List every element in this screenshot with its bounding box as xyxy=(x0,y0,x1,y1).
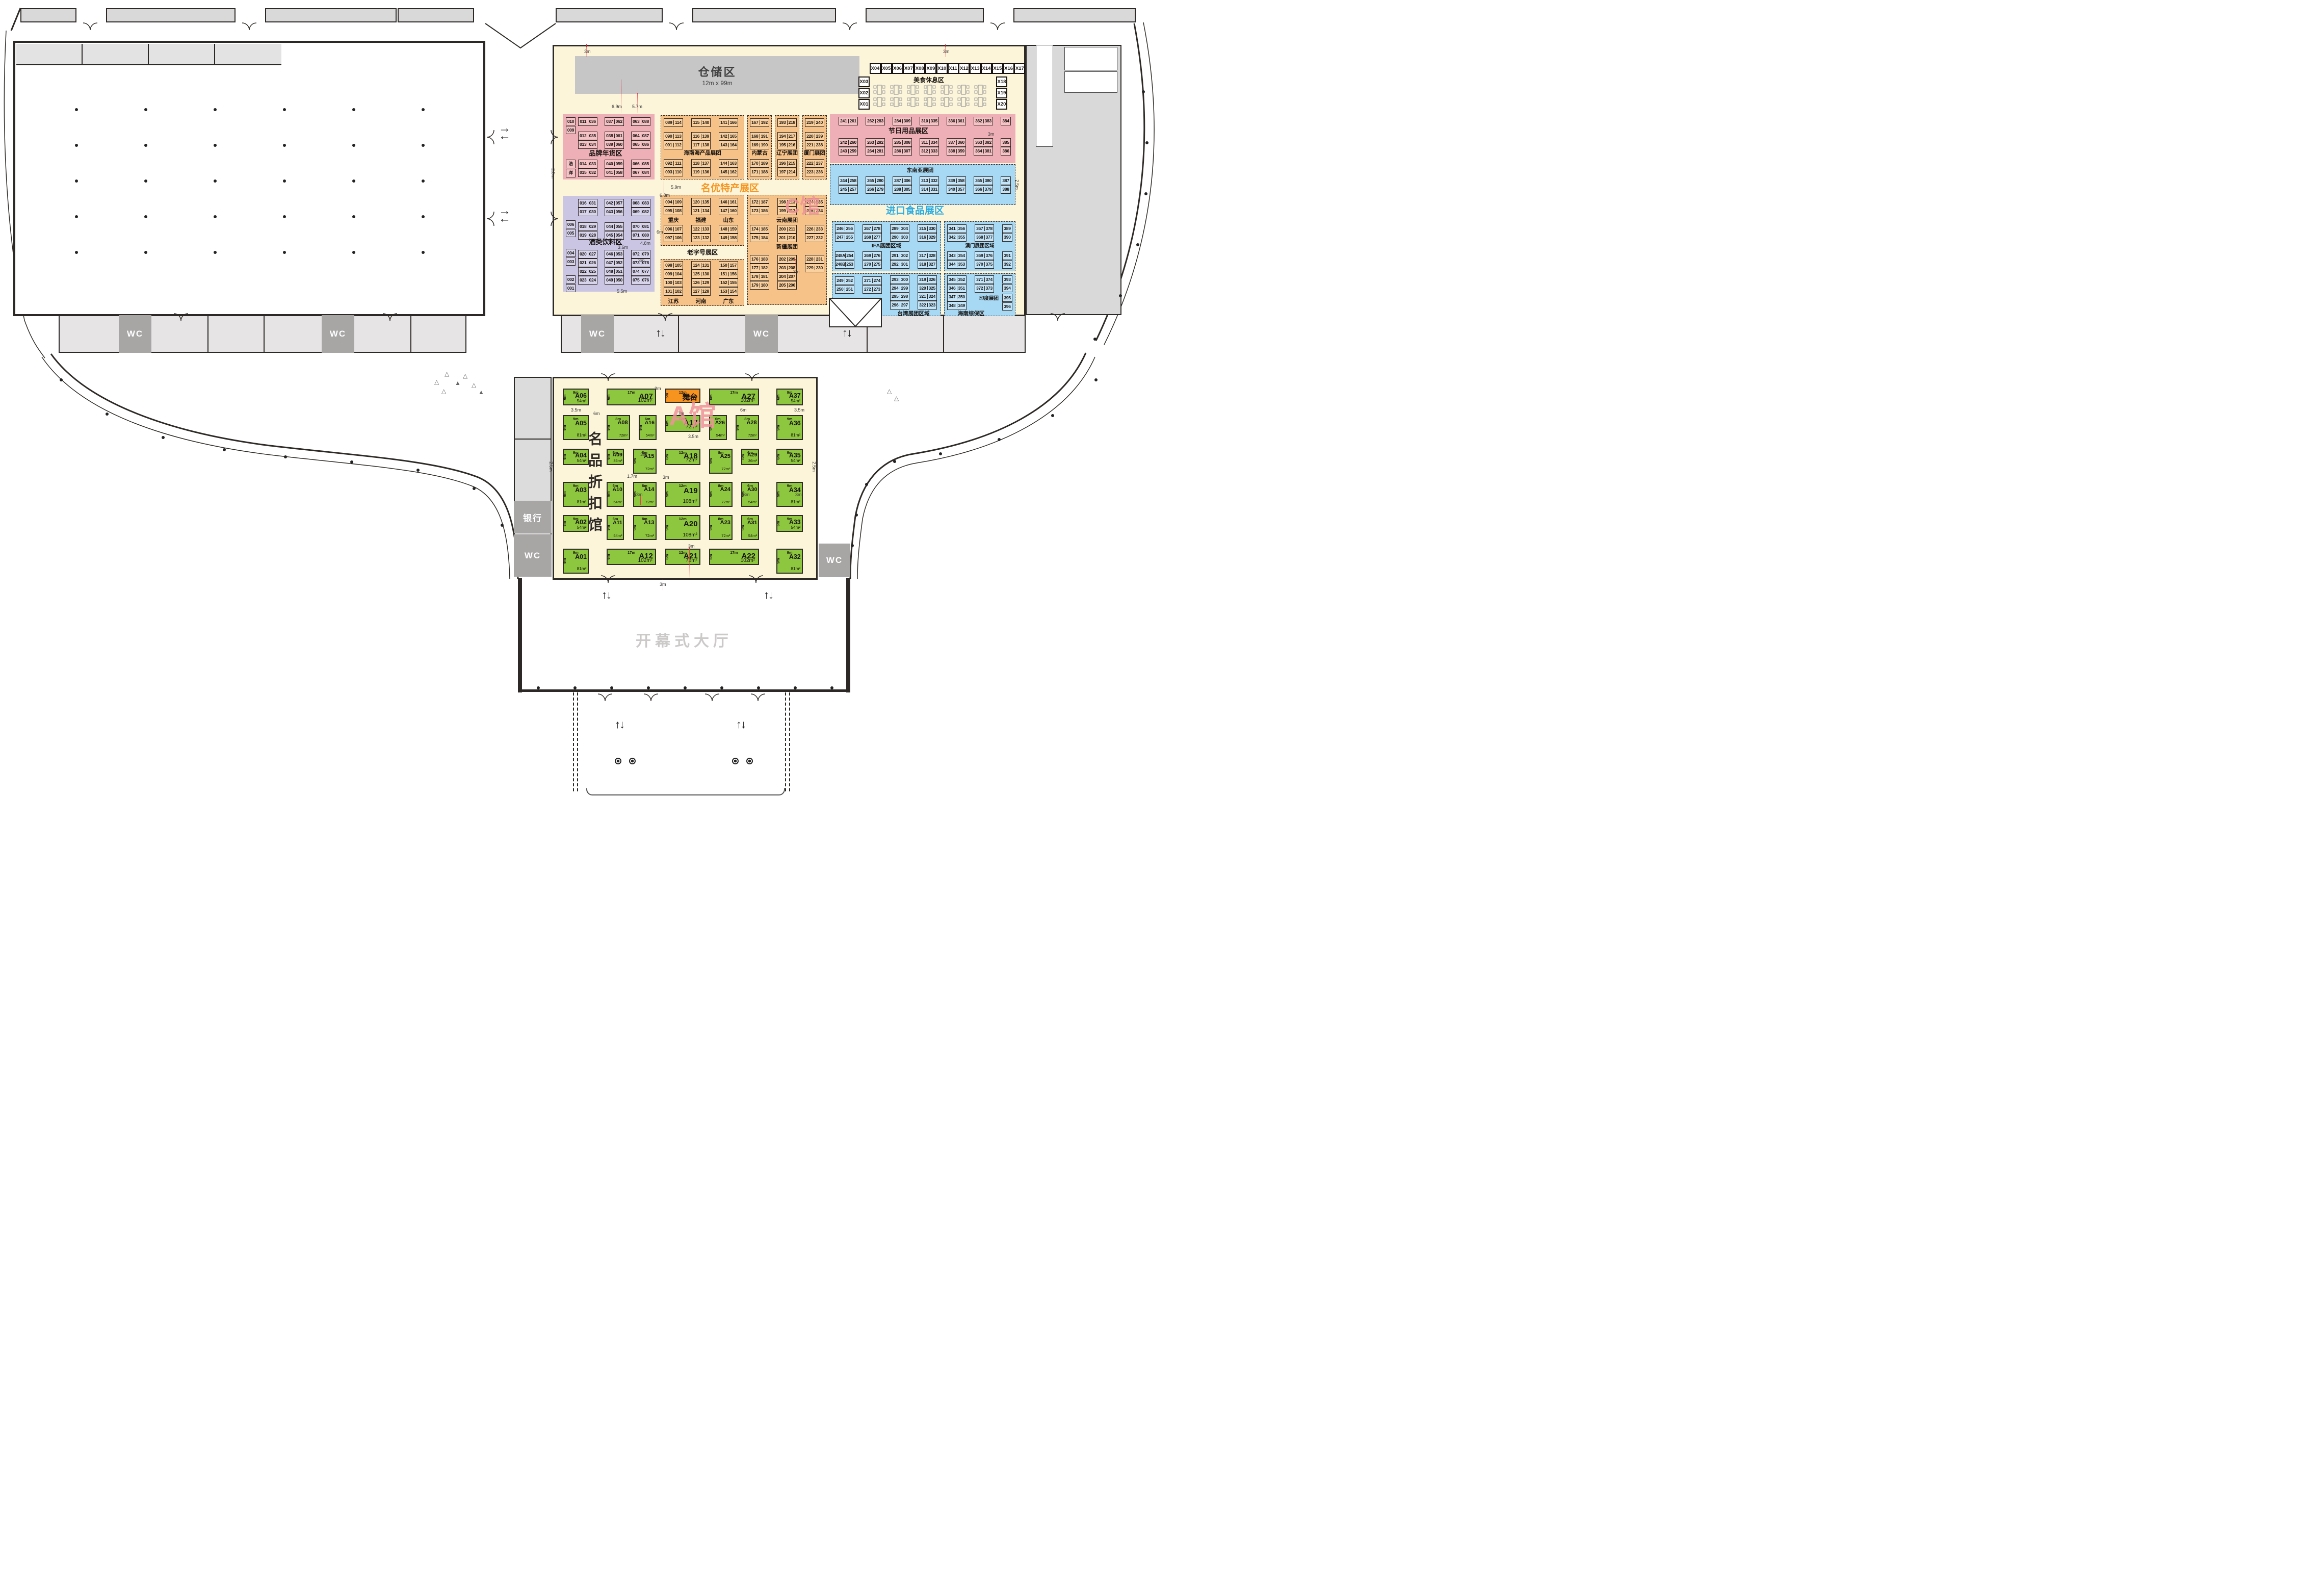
bank-room[interactable]: 银行 xyxy=(514,501,552,533)
booth-cell[interactable]: 248A254 xyxy=(835,251,854,260)
booth-cell[interactable]: 267278 xyxy=(863,224,882,233)
booth-cell[interactable]: 271274 xyxy=(863,276,882,285)
booth-cell[interactable]: 005 xyxy=(566,229,576,237)
booth-cell[interactable]: 313332 xyxy=(920,176,939,185)
booth-cell[interactable]: 153154 xyxy=(719,287,738,296)
booth-cell[interactable]: 265280 xyxy=(866,176,885,185)
booth-cell[interactable]: 221238 xyxy=(805,141,824,149)
x-booth-cell[interactable]: X12 xyxy=(958,63,970,74)
booth-cell[interactable]: 011036 xyxy=(578,117,597,126)
booth-cell[interactable]: 272273 xyxy=(863,285,882,294)
x-booth-cell[interactable]: X05 xyxy=(881,63,892,74)
booth-cell[interactable]: 321324 xyxy=(918,292,937,301)
booth-cell[interactable]: 003 xyxy=(566,258,576,266)
booth-cell[interactable]: 040059 xyxy=(605,160,624,168)
booth-cell[interactable]: 286307 xyxy=(893,147,912,156)
booth-cell[interactable]: 337360 xyxy=(947,138,966,147)
booth-cell[interactable]: 369376 xyxy=(975,251,994,260)
booth-cell[interactable]: 320325 xyxy=(918,284,937,293)
booth-cell[interactable]: 144163 xyxy=(719,159,738,168)
booth-width-dim: 17m xyxy=(730,390,738,395)
column-dot xyxy=(416,469,420,472)
booth-cell[interactable]: 126129 xyxy=(691,278,711,287)
booth-cell[interactable]: 270275 xyxy=(863,260,882,269)
booth-cell[interactable]: 097106 xyxy=(664,234,683,242)
booth-cell[interactable]: 170189 xyxy=(750,159,769,168)
booth-cell[interactable]: 151156 xyxy=(719,270,738,278)
column-dot xyxy=(422,251,425,254)
booth-cell[interactable]: 152155 xyxy=(719,278,738,287)
booth-cell[interactable]: 179180 xyxy=(750,281,769,290)
booth-cell[interactable]: 395 xyxy=(1002,294,1012,302)
booth-cell[interactable]: 287306 xyxy=(893,176,912,185)
booth-cell[interactable]: 338359 xyxy=(947,147,966,156)
booth-cell[interactable]: 047052 xyxy=(605,259,624,267)
booth-cell[interactable]: 363382 xyxy=(974,138,993,147)
booth-cell[interactable]: 014033 xyxy=(578,160,597,168)
booth-height-dim: 6m xyxy=(665,554,669,560)
a-booth[interactable]: 17m6mA22102m² xyxy=(709,549,759,565)
double-door-icon xyxy=(597,693,613,705)
booth-cell[interactable]: 347350 xyxy=(947,293,967,301)
top-wall-segment xyxy=(20,8,76,22)
x-booth-cell[interactable]: X19 xyxy=(996,88,1007,98)
a-booth[interactable]: 8m9mA2372m² xyxy=(709,515,733,540)
booth-cell[interactable]: 226233 xyxy=(805,225,824,234)
a-booth[interactable]: 6m9mA1054m² xyxy=(607,482,624,507)
booth-cell[interactable]: 021026 xyxy=(578,259,597,267)
x-booth-cell[interactable]: X18 xyxy=(996,76,1007,87)
booth-cell[interactable]: 141166 xyxy=(719,118,738,127)
column-dot xyxy=(75,144,78,147)
booth-cell[interactable]: 038061 xyxy=(605,132,624,140)
booth-cell[interactable]: 322323 xyxy=(918,301,937,310)
a-booth[interactable]: 9m9mA3281m² xyxy=(776,549,803,574)
a-booth[interactable]: 6m6mA0936m² xyxy=(607,449,624,466)
booth-cell[interactable]: 244258 xyxy=(839,176,858,185)
booth-cell[interactable]: 177182 xyxy=(750,264,769,272)
booth-cell[interactable]: 116139 xyxy=(691,132,711,141)
booth-cell[interactable]: 391 xyxy=(1002,251,1012,260)
booth-cell[interactable]: 366379 xyxy=(974,185,993,194)
booth-cell[interactable]: 266279 xyxy=(866,185,885,194)
top-wall-segment xyxy=(265,8,397,22)
booth-cell[interactable]: 168191 xyxy=(750,132,769,141)
a-booth[interactable]: 9m6mA3754m² xyxy=(776,389,803,405)
booth-cell[interactable]: 118137 xyxy=(691,159,711,168)
booth-cell[interactable]: 295298 xyxy=(890,292,909,301)
column-dot xyxy=(893,460,896,463)
booth-cell[interactable]: 228231 xyxy=(805,255,824,264)
a-booth[interactable]: 9m6mA0654m² xyxy=(563,389,589,405)
booth-cell[interactable]: 312333 xyxy=(920,147,939,156)
booth-cell[interactable]: 119136 xyxy=(691,168,711,176)
booth-cell[interactable]: 390 xyxy=(1002,233,1012,242)
booth-cell[interactable]: 245257 xyxy=(839,185,858,194)
booth-cell[interactable]: 016031 xyxy=(578,199,597,208)
a-booth[interactable]: 12m6mA1872m² xyxy=(665,449,700,466)
x-booth-cell[interactable]: X08 xyxy=(914,63,925,74)
booth-cell[interactable]: 145162 xyxy=(719,168,738,176)
booth-cell[interactable]: 142165 xyxy=(719,132,738,141)
booth-cell[interactable]: 342355 xyxy=(947,233,967,242)
a-booth[interactable]: 17m6mA07102m² xyxy=(607,389,657,405)
booth-cell[interactable]: 311334 xyxy=(920,138,939,147)
booth-cell[interactable]: 074077 xyxy=(631,267,650,276)
booth-cell[interactable]: 147160 xyxy=(719,207,738,215)
booth-cell[interactable]: 089114 xyxy=(664,118,683,127)
booth-cell[interactable]: 194217 xyxy=(777,132,797,141)
booth-cell[interactable]: 318327 xyxy=(918,260,937,269)
wc-room[interactable]: WC xyxy=(581,315,614,353)
booth-cell[interactable]: 262283 xyxy=(866,117,885,125)
booth-cell[interactable]: 022025 xyxy=(578,267,597,276)
booth-cell[interactable]: 148159 xyxy=(719,225,738,234)
booth-cell[interactable]: 017030 xyxy=(578,208,597,216)
booth-cell[interactable]: 394 xyxy=(1002,284,1012,292)
booth-cell[interactable]: 268277 xyxy=(863,233,882,242)
booth-cell[interactable]: 012035 xyxy=(578,132,597,140)
entrance-column-icon xyxy=(732,758,739,764)
booth-cell[interactable]: 290303 xyxy=(890,233,909,242)
booth-cell[interactable]: 094109 xyxy=(664,198,683,207)
booth-cell[interactable]: 396 xyxy=(1002,302,1012,311)
a-booth[interactable]: 12m6mA2172m² xyxy=(665,549,700,565)
booth-cell[interactable]: 浩 xyxy=(566,160,576,168)
column-dot xyxy=(473,487,476,490)
x-booth-cell[interactable]: X09 xyxy=(925,63,936,74)
booth-cell[interactable]: 247255 xyxy=(835,233,854,242)
dimension-label: 3m xyxy=(636,492,643,497)
booth-cell[interactable]: 385 xyxy=(1001,138,1011,147)
booth-cell[interactable]: 121134 xyxy=(691,207,711,215)
booth-cell[interactable]: 285308 xyxy=(893,138,912,147)
booth-cell[interactable]: 065086 xyxy=(631,140,650,149)
booth-cell[interactable]: 229230 xyxy=(805,264,824,272)
booth-cell[interactable]: 222237 xyxy=(805,159,824,168)
booth-width-dim: 17m xyxy=(628,550,635,555)
a-booth[interactable]: 8m9mA2872m² xyxy=(736,415,759,440)
entrance-canopy xyxy=(586,788,785,795)
wc-room[interactable]: WC xyxy=(745,315,778,353)
booth-height-dim: 6m xyxy=(709,554,713,560)
booth-cell[interactable]: 125130 xyxy=(691,270,711,278)
booth-cell[interactable]: 250251 xyxy=(835,285,854,294)
x-booth-cell[interactable]: X02 xyxy=(858,88,870,98)
booth-cell[interactable]: 176183 xyxy=(750,255,769,264)
booth-cell[interactable]: 069082 xyxy=(631,208,650,216)
booth-cell[interactable]: 364381 xyxy=(974,147,993,156)
booth-cell[interactable]: 341356 xyxy=(947,224,967,233)
booth-cell[interactable]: 071080 xyxy=(631,231,650,240)
booth-cell[interactable]: 150157 xyxy=(719,261,738,270)
booth-width-dim: 17m xyxy=(730,550,738,555)
booth-cell[interactable]: 288305 xyxy=(893,185,912,194)
booth-cell[interactable]: 387 xyxy=(1001,176,1011,185)
booth-cell[interactable]: 242260 xyxy=(839,138,858,147)
booth-cell[interactable]: 122133 xyxy=(691,225,711,234)
booth-cell[interactable]: 100103 xyxy=(664,278,683,287)
booth-cell[interactable]: 143164 xyxy=(719,141,738,149)
x-booth-cell[interactable]: X07 xyxy=(903,63,914,74)
booth-cell[interactable]: 127128 xyxy=(691,287,711,296)
booth-cell[interactable]: 227232 xyxy=(805,234,824,242)
booth-area: 72m² xyxy=(645,467,654,471)
booth-height-dim: 6m xyxy=(562,394,566,400)
booth-cell[interactable]: 068083 xyxy=(631,199,650,208)
booth-cell[interactable]: 197214 xyxy=(777,168,797,176)
booth-cell[interactable]: 037062 xyxy=(605,117,624,126)
booth-id: A20 xyxy=(684,520,698,528)
booth-cell[interactable]: 099104 xyxy=(664,270,683,278)
booth-cell[interactable]: 205206 xyxy=(777,281,797,290)
booth-cell[interactable]: 169190 xyxy=(750,141,769,149)
booth-cell[interactable]: 201210 xyxy=(777,234,797,242)
booth-cell[interactable]: 386 xyxy=(1001,147,1011,156)
booth-cell[interactable]: 344353 xyxy=(947,260,967,269)
booth-cell[interactable]: 223236 xyxy=(805,168,824,176)
wc-room[interactable]: WC xyxy=(322,315,354,353)
booth-cell[interactable]: 315330 xyxy=(918,224,937,233)
entrance-column-icon xyxy=(615,758,621,764)
booth-cell[interactable]: 173186 xyxy=(750,207,769,215)
booth-cell[interactable]: 091112 xyxy=(664,141,683,149)
booth-cell[interactable]: 243259 xyxy=(839,147,858,156)
booth-cell[interactable]: 092111 xyxy=(664,159,683,168)
x-booth-cell[interactable]: X20 xyxy=(996,99,1007,110)
booth-area: 81m² xyxy=(791,567,800,571)
booth-area: 72m² xyxy=(686,558,697,563)
booth-cell[interactable]: 220239 xyxy=(805,132,824,141)
booth-cell[interactable]: 063088 xyxy=(631,117,650,126)
a-booth[interactable]: 9m9mA3681m² xyxy=(776,415,803,440)
booth-id: A26 xyxy=(715,420,725,426)
booth-cell[interactable]: 339358 xyxy=(947,176,966,185)
a-booth[interactable]: 9m6mA3554m² xyxy=(776,449,803,466)
booth-cell[interactable]: 120135 xyxy=(691,198,711,207)
booth-cell[interactable]: 098105 xyxy=(664,261,683,270)
booth-cell[interactable]: 292301 xyxy=(890,260,909,269)
booth-cell[interactable]: 049050 xyxy=(605,276,624,285)
booth-height-dim: 6m xyxy=(606,454,611,459)
dimension-label: 3m xyxy=(638,258,645,263)
booth-cell[interactable]: 340357 xyxy=(947,185,966,194)
booth-cell[interactable]: 289304 xyxy=(890,224,909,233)
booth-cell[interactable]: 367378 xyxy=(975,224,994,233)
a-booth[interactable]: 17m6mA12102m² xyxy=(607,549,657,565)
booth-cell[interactable]: 317328 xyxy=(918,251,937,260)
x-booth-cell[interactable]: X15 xyxy=(992,63,1003,74)
booth-cell[interactable]: 246256 xyxy=(835,224,854,233)
column-dot xyxy=(501,524,504,527)
a-booth[interactable]: 8m9mA2472m² xyxy=(709,482,733,507)
column-dot xyxy=(1093,338,1096,341)
a-booth[interactable]: 8m9mA1372m² xyxy=(633,515,657,540)
booth-cell[interactable]: 316329 xyxy=(918,233,937,242)
a-booth[interactable]: 8m9mA0872m² xyxy=(607,415,630,440)
booth-cell[interactable]: 345352 xyxy=(947,275,967,284)
booth-cell[interactable]: 009 xyxy=(566,126,576,134)
booth-cell[interactable]: 046053 xyxy=(605,250,624,259)
group-label: 厦门展团 xyxy=(804,149,825,157)
x-booth-cell[interactable]: X03 xyxy=(858,76,870,87)
booth-cell[interactable]: 020027 xyxy=(578,250,597,259)
dining-table-icon xyxy=(957,85,970,97)
booth-cell[interactable]: 362383 xyxy=(974,117,993,125)
booth-cell[interactable]: 023024 xyxy=(578,276,597,285)
dimension-label: 3m xyxy=(663,475,669,480)
booth-cell[interactable]: 167192 xyxy=(750,118,769,127)
booth-cell[interactable]: 249252 xyxy=(835,276,854,285)
booth-cell[interactable]: 336361 xyxy=(947,117,966,125)
booth-cell[interactable]: 195216 xyxy=(777,141,797,149)
booth-cell[interactable]: 004 xyxy=(566,249,576,257)
booth-cell[interactable]: 294299 xyxy=(890,284,909,293)
booth-cell[interactable]: 219240 xyxy=(805,118,824,127)
booth-cell[interactable]: 368377 xyxy=(975,233,994,242)
booth-cell[interactable]: 196215 xyxy=(777,159,797,168)
booth-cell[interactable]: 123132 xyxy=(691,234,711,242)
opening-hall-right-wall xyxy=(846,578,850,692)
booth-cell[interactable]: 296297 xyxy=(890,301,909,310)
booth-cell[interactable]: 384 xyxy=(1001,117,1011,125)
x-booth-cell[interactable]: X11 xyxy=(948,63,959,74)
booth-cell[interactable]: 263282 xyxy=(866,138,885,147)
booth-cell[interactable]: 293300 xyxy=(890,275,909,284)
booth-cell[interactable]: 096107 xyxy=(664,225,683,234)
booth-cell[interactable]: 043056 xyxy=(605,208,624,216)
booth-cell[interactable]: 389 xyxy=(1002,224,1012,233)
booth-cell[interactable]: 269276 xyxy=(863,251,882,260)
group-label: 广东 xyxy=(723,297,734,305)
booth-cell[interactable]: 006 xyxy=(566,220,576,228)
booth-cell[interactable]: 090113 xyxy=(664,132,683,141)
booth-cell[interactable]: 171188 xyxy=(750,168,769,176)
a-booth[interactable]: 8m9mA2572m² xyxy=(709,449,733,474)
booth-cell[interactable]: 001 xyxy=(566,284,576,292)
a-booth[interactable]: 9m6mA3354m² xyxy=(776,515,803,532)
a-booth[interactable]: 6m9mA3154m² xyxy=(741,515,759,540)
booth-cell[interactable]: 178181 xyxy=(750,272,769,281)
import-title: 进口食品展区 xyxy=(886,203,944,217)
booth-cell[interactable]: 015032 xyxy=(578,168,597,177)
booth-cell[interactable]: 314331 xyxy=(920,185,939,194)
wc-room[interactable]: WC xyxy=(819,544,850,577)
a-booth[interactable]: 17m6mA27102m² xyxy=(709,389,759,405)
booth-cell[interactable]: 248B253 xyxy=(835,260,854,269)
a-booth[interactable]: 12m9mA19108m² xyxy=(665,482,700,507)
booth-cell[interactable]: 072079 xyxy=(631,250,650,259)
booth-cell[interactable]: 117138 xyxy=(691,141,711,149)
a-booth[interactable]: 9m9mA0181m² xyxy=(563,549,589,574)
booth-cell[interactable]: 392 xyxy=(1002,260,1012,269)
column-dot xyxy=(75,215,78,218)
booth-cell[interactable]: 372373 xyxy=(975,284,994,293)
booth-cell[interactable]: 070081 xyxy=(631,222,650,231)
booth-cell[interactable]: 174185 xyxy=(750,225,769,234)
booth-cell[interactable]: 291302 xyxy=(890,251,909,260)
booth-cell[interactable]: 175184 xyxy=(750,234,769,242)
double-door-icon xyxy=(658,313,673,324)
booth-cell[interactable]: 202209 xyxy=(777,255,797,264)
x-booth-cell[interactable]: X16 xyxy=(1003,63,1014,74)
booth-cell[interactable]: 044055 xyxy=(605,222,624,231)
booth-cell[interactable]: 346351 xyxy=(947,284,967,293)
x-booth-cell[interactable]: X10 xyxy=(936,63,948,74)
double-door-icon xyxy=(1050,313,1065,324)
booth-cell[interactable]: 371374 xyxy=(975,275,994,284)
wc-room[interactable]: WC xyxy=(119,315,151,353)
booth-cell[interactable]: 149158 xyxy=(719,234,738,242)
entrance-wall xyxy=(573,692,574,791)
dimension-label: 3.6m xyxy=(618,245,628,250)
booth-cell[interactable]: 370375 xyxy=(975,260,994,269)
booth-cell[interactable]: 343354 xyxy=(947,251,967,260)
booth-cell[interactable]: 172187 xyxy=(750,198,769,207)
a-booth[interactable]: 6m9mA1654m² xyxy=(639,415,657,440)
booth-cell[interactable]: 284309 xyxy=(893,117,912,125)
booth-cell[interactable]: 388 xyxy=(1001,185,1011,194)
booth-height-dim: 6m xyxy=(606,394,611,400)
x-booth-cell[interactable]: X04 xyxy=(870,63,881,74)
booth-cell[interactable]: 067084 xyxy=(631,168,650,177)
booth-cell[interactable]: 241261 xyxy=(839,117,858,125)
booth-cell[interactable]: 115140 xyxy=(691,118,711,127)
booth-cell[interactable]: 042057 xyxy=(605,199,624,208)
booth-cell[interactable]: 348349 xyxy=(947,301,967,310)
dimension-label: 2.5m xyxy=(549,461,554,472)
x-booth-cell[interactable]: X01 xyxy=(858,99,870,110)
room-divider xyxy=(943,315,944,353)
column-dot xyxy=(1142,90,1145,93)
booth-cell[interactable]: 075076 xyxy=(631,276,650,285)
group-label: 河南 xyxy=(696,297,707,305)
a-booth[interactable]: 6m9mA1154m² xyxy=(607,515,624,540)
booth-cell[interactable]: 002 xyxy=(566,275,576,284)
booth-cell[interactable]: 洋 xyxy=(566,169,576,177)
x-booth-cell[interactable]: X14 xyxy=(981,63,992,74)
booth-cell[interactable]: 264281 xyxy=(866,147,885,156)
booth-cell[interactable]: 018029 xyxy=(578,222,597,231)
booth-cell[interactable]: 093110 xyxy=(664,168,683,176)
group-label: 辽宁展团 xyxy=(776,149,798,157)
x-booth-cell[interactable]: X06 xyxy=(892,63,903,74)
x-booth-cell[interactable]: X17 xyxy=(1014,63,1025,74)
booth-cell[interactable]: 393 xyxy=(1002,275,1012,284)
wc-room[interactable]: WC xyxy=(514,534,552,577)
booth-cell[interactable]: 193218 xyxy=(777,118,797,127)
booth-cell[interactable]: 010 xyxy=(566,117,576,125)
booth-cell[interactable]: 101102 xyxy=(664,287,683,296)
booth-cell[interactable]: 310335 xyxy=(920,117,939,125)
booth-cell[interactable]: 064087 xyxy=(631,132,650,140)
dining-table-icon xyxy=(974,85,987,97)
booth-cell[interactable]: 365380 xyxy=(974,176,993,185)
booth-cell[interactable]: 095108 xyxy=(664,207,683,215)
booth-cell[interactable]: 048051 xyxy=(605,267,624,276)
booth-cell[interactable]: 146161 xyxy=(719,198,738,207)
column-dot xyxy=(757,686,760,689)
booth-cell[interactable]: 319326 xyxy=(918,275,937,284)
booth-cell[interactable]: 124131 xyxy=(691,261,711,270)
a-booth[interactable]: 6m6mA2936m² xyxy=(741,449,759,466)
booth-cell[interactable]: 200211 xyxy=(777,225,797,234)
x-booth-cell[interactable]: X13 xyxy=(970,63,981,74)
a-booth[interactable]: 12m9mA20108m² xyxy=(665,515,700,540)
booth-cell[interactable]: 066085 xyxy=(631,160,650,168)
booth-cell[interactable]: 041058 xyxy=(605,168,624,177)
booth-height-dim: 9m xyxy=(709,525,713,530)
